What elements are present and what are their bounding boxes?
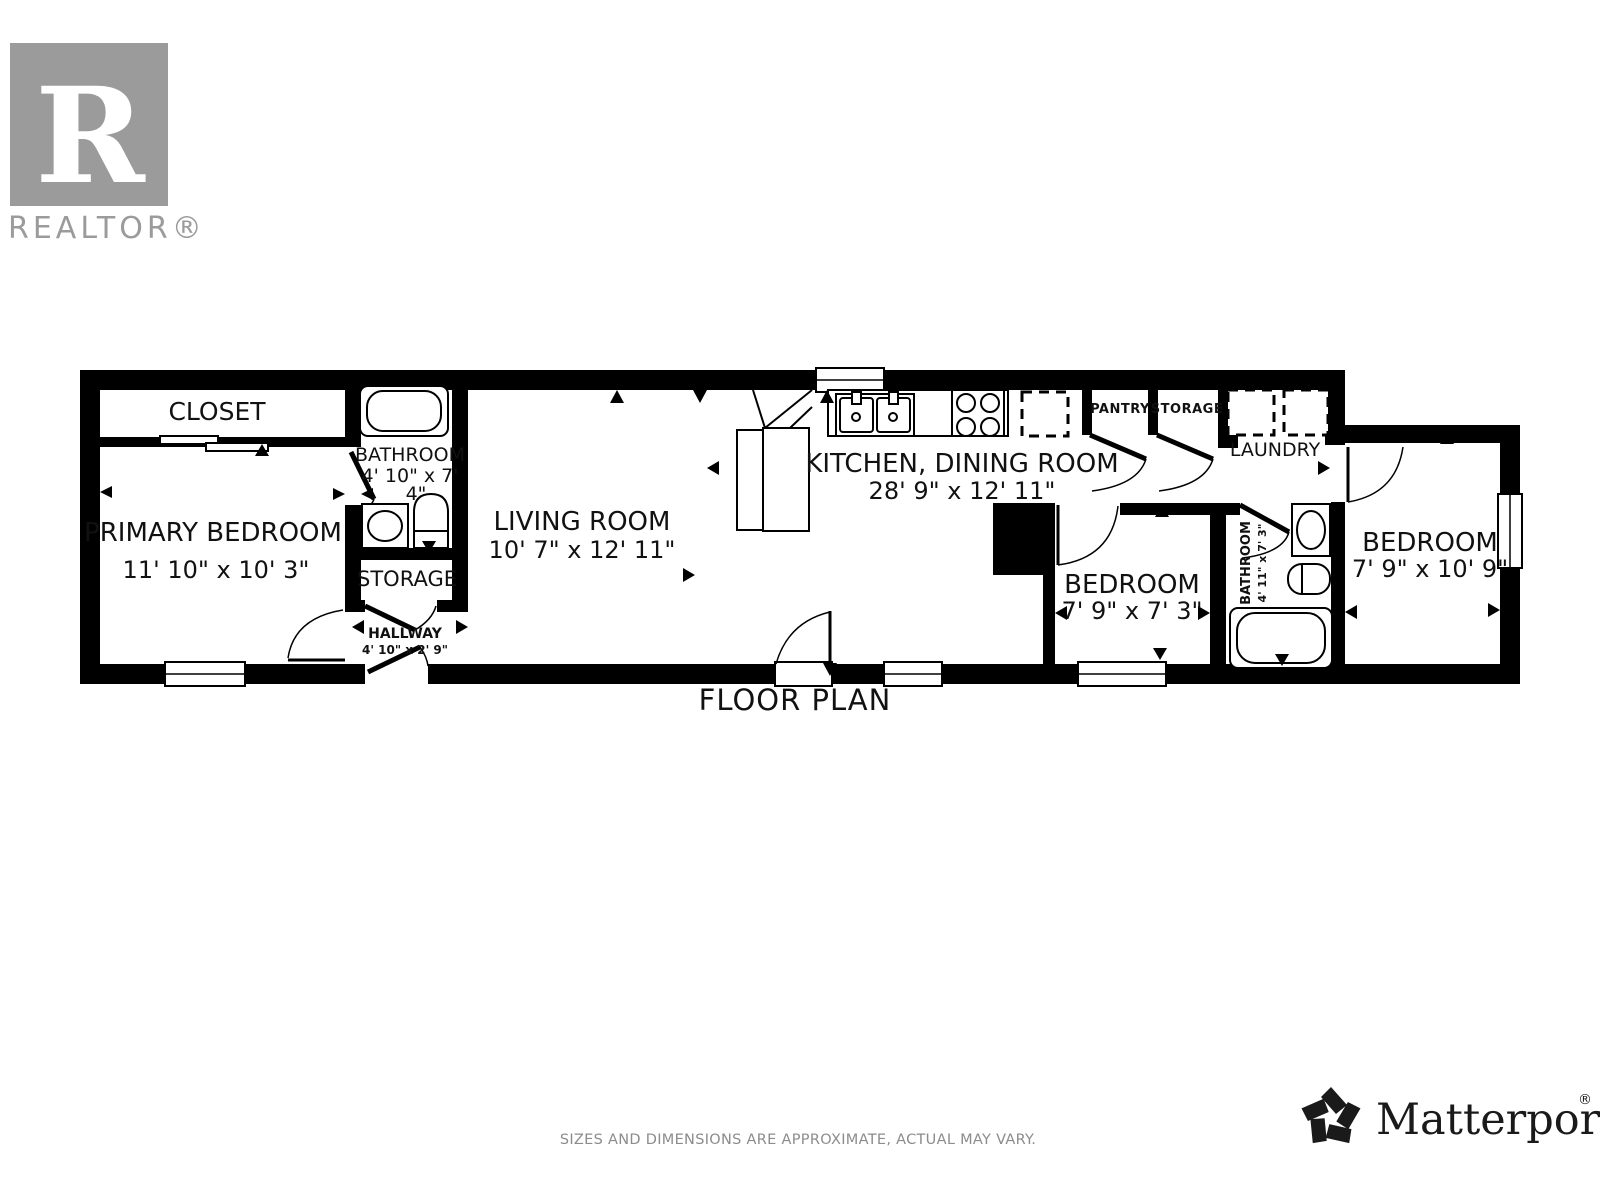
toilet-icon [362, 504, 408, 548]
room-dims-bathroom-second: 4' 11" x 7' 3" [1256, 524, 1269, 603]
matterport-wordmark: Matterport [1376, 1095, 1600, 1145]
bathtub-icon [360, 386, 448, 436]
door-bedroom-right-icon [1348, 447, 1403, 502]
room-dims-living-room: 10' 7" x 12' 11" [489, 536, 676, 564]
disclaimer-text: SIZES AND DIMENSIONS ARE APPROXIMATE, AC… [560, 1132, 1036, 1148]
floor-plan-svg: R REALTOR® [0, 0, 1600, 1200]
stove-icon [952, 390, 1004, 436]
furnace-closet [737, 390, 812, 531]
realtor-wordmark: REALTOR® [8, 211, 206, 246]
room-dims-primary-bedroom: 11' 10" x 10' 3" [123, 556, 310, 584]
room-label-bedroom-right: BEDROOM [1362, 528, 1498, 558]
room-dims-hallway: 4' 10" x 2' 9" [362, 643, 448, 657]
sink2-icon [1292, 504, 1330, 556]
room-dims-bedroom-middle: 7' 9" x 7' 3" [1061, 597, 1202, 625]
door-storage-kitchen-icon [1157, 435, 1213, 491]
room-label-primary-bedroom: PRIMARY BEDROOM [84, 518, 342, 548]
room-dims-kitchen-dining: 28' 9" x 12' 11" [869, 477, 1056, 505]
room-label-storage-hall: STORAGE [357, 567, 457, 591]
toilet2-icon [1288, 564, 1330, 594]
plan-title: FLOOR PLAN [699, 683, 892, 717]
room-dims-bedroom-right: 7' 9" x 10' 9" [1352, 555, 1508, 583]
window-bedroom-middle [1078, 662, 1166, 686]
matterport-logo-icon [1298, 1087, 1365, 1152]
matterport-registered-mark: ® [1578, 1092, 1592, 1108]
double-kitchen-sink-icon [836, 392, 914, 436]
room-label-storage-kitchen: STORAGE [1151, 402, 1223, 417]
room-label-bathroom-main: BATHROOM [355, 444, 465, 466]
door-bedroom-middle-icon [1058, 505, 1118, 565]
room-label-pantry: PANTRY [1090, 402, 1150, 417]
window-primary-bedroom [165, 662, 245, 686]
window-living-room [884, 662, 942, 686]
door-primary-bedroom-icon [288, 610, 345, 660]
floor-plan-page: R REALTOR® [0, 0, 1600, 1200]
realtor-logo-icon: R [10, 43, 168, 214]
window-kitchen-top [816, 368, 884, 392]
refrigerator-icon [1022, 392, 1068, 436]
door-living-room-icon [775, 611, 837, 686]
laundry-fixtures [1228, 390, 1328, 435]
room-label-closet: CLOSET [168, 397, 266, 426]
room-label-kitchen-dining: KITCHEN, DINING ROOM [805, 449, 1118, 479]
dryer-icon [1284, 390, 1328, 435]
room-label-living-room: LIVING ROOM [494, 507, 671, 537]
realtor-logo-letter: R [35, 59, 146, 214]
washer-icon [1228, 390, 1274, 435]
room-label-bedroom-middle: BEDROOM [1064, 570, 1200, 600]
room-dims-bathroom-main-2: 4" [406, 483, 427, 505]
room-label-bathroom-second: BATHROOM [1239, 521, 1254, 605]
room-label-hallway: HALLWAY [368, 626, 443, 642]
room-label-laundry: LAUNDRY [1230, 439, 1321, 461]
solid-wall-block [993, 503, 1055, 575]
